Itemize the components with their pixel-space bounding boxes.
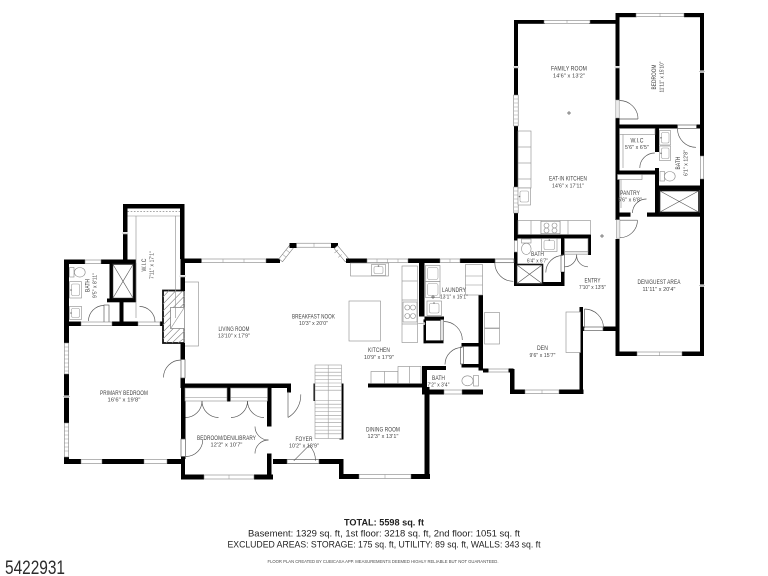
svg-text:12'3" x 13'1": 12'3" x 13'1" bbox=[368, 434, 399, 440]
svg-text:7'11" x 17'1": 7'11" x 17'1" bbox=[150, 251, 156, 279]
svg-text:ENTRY: ENTRY bbox=[585, 279, 601, 285]
svg-text:W.I.C: W.I.C bbox=[631, 139, 644, 145]
svg-text:9'6" x 15'7": 9'6" x 15'7" bbox=[530, 353, 556, 359]
svg-text:DEN: DEN bbox=[537, 346, 548, 352]
svg-text:13'1" x 15'1": 13'1" x 15'1" bbox=[440, 295, 468, 301]
svg-text:DINING ROOM: DINING ROOM bbox=[366, 428, 400, 434]
svg-text:PANTRY: PANTRY bbox=[620, 191, 640, 197]
svg-text:LAUNDRY: LAUNDRY bbox=[442, 288, 466, 294]
svg-text:5'6" x 6'8": 5'6" x 6'8" bbox=[618, 198, 642, 204]
svg-text:BATH: BATH bbox=[432, 376, 445, 382]
svg-text:16'6" x 19'8": 16'6" x 19'8" bbox=[108, 398, 141, 404]
svg-text:10'3" x 20'0": 10'3" x 20'0" bbox=[299, 321, 328, 327]
svg-text:14'6" x 17'11": 14'6" x 17'11" bbox=[552, 184, 584, 190]
svg-text:EAT-IN KITCHEN: EAT-IN KITCHEN bbox=[549, 177, 587, 183]
svg-text:BEDROOM/DEN/LIBRARY: BEDROOM/DEN/LIBRARY bbox=[197, 436, 256, 442]
svg-text:5422931: 5422931 bbox=[5, 557, 65, 576]
svg-text:W.I.C: W.I.C bbox=[142, 258, 148, 271]
svg-text:DEN/GUEST AREA: DEN/GUEST AREA bbox=[638, 280, 681, 286]
svg-text:11'11" x 15'10": 11'11" x 15'10" bbox=[660, 62, 666, 93]
svg-text:6'4" x 6'7": 6'4" x 6'7" bbox=[527, 259, 548, 265]
svg-text:7'10" x 13'5": 7'10" x 13'5" bbox=[579, 285, 606, 291]
svg-text:EXCLUDED AREAS: STORAGE: 175 s: EXCLUDED AREAS: STORAGE: 175 sq. ft, UTI… bbox=[228, 540, 541, 551]
svg-text:6'1" x 12'8": 6'1" x 12'8" bbox=[684, 150, 690, 176]
svg-text:11'11" x 20'4": 11'11" x 20'4" bbox=[643, 287, 676, 293]
svg-text:KITCHEN: KITCHEN bbox=[368, 348, 390, 354]
svg-text:Basement: 1329 sq. ft, 1st flo: Basement: 1329 sq. ft, 1st floor: 3218 s… bbox=[248, 529, 520, 540]
svg-text:BEDROOM: BEDROOM bbox=[652, 65, 658, 90]
svg-text:10'2" x 18'9": 10'2" x 18'9" bbox=[289, 444, 319, 450]
svg-text:9'5" x 8'11": 9'5" x 8'11" bbox=[93, 273, 99, 298]
svg-text:TOTAL: 5598 sq. ft: TOTAL: 5598 sq. ft bbox=[344, 518, 425, 529]
svg-text:7'2" x 3'4": 7'2" x 3'4" bbox=[428, 383, 450, 389]
svg-text:12'2" x 10'7": 12'2" x 10'7" bbox=[211, 443, 243, 449]
svg-text:13'10" x 17'9": 13'10" x 17'9" bbox=[218, 334, 250, 340]
svg-text:14'6" x 13'2": 14'6" x 13'2" bbox=[553, 74, 585, 80]
svg-text:FAMILY ROOM: FAMILY ROOM bbox=[551, 67, 587, 73]
svg-text:BATH: BATH bbox=[676, 157, 682, 170]
svg-text:PRIMARY BEDROOM: PRIMARY BEDROOM bbox=[100, 391, 148, 397]
svg-text:10'9" x 17'9": 10'9" x 17'9" bbox=[364, 355, 394, 361]
svg-text:5'6" x 6'5": 5'6" x 6'5" bbox=[625, 145, 649, 151]
svg-text:LIVING ROOM: LIVING ROOM bbox=[219, 327, 250, 333]
svg-text:FOYER: FOYER bbox=[296, 437, 313, 443]
svg-text:BREAKFAST NOOK: BREAKFAST NOOK bbox=[292, 315, 335, 321]
svg-text:BATH: BATH bbox=[86, 279, 92, 292]
svg-text:BATH: BATH bbox=[531, 252, 544, 258]
svg-text:FLOOR PLAN CREATED BY CUBICASA: FLOOR PLAN CREATED BY CUBICASA APP. MEAS… bbox=[268, 559, 499, 564]
